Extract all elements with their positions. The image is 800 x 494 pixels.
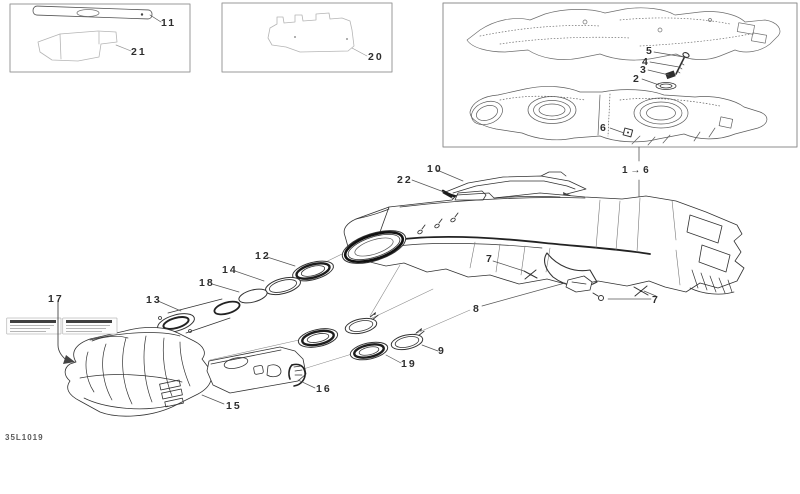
callout-15: 15 xyxy=(226,401,242,412)
ring-dark-b xyxy=(349,339,389,363)
callout-7-left: 7 xyxy=(486,254,494,265)
callout-10: 10 xyxy=(427,164,443,175)
ring-18 xyxy=(237,286,268,305)
callout-3: 3 xyxy=(640,65,648,76)
callout-13: 13 xyxy=(146,295,162,306)
diagram-canvas xyxy=(0,0,800,494)
inset-box-1 xyxy=(10,4,190,72)
callout-16: 16 xyxy=(316,384,332,395)
callout-18: 18 xyxy=(199,278,215,289)
part-strip-11 xyxy=(33,6,152,19)
ring-dark-a xyxy=(297,326,340,351)
silencer-15 xyxy=(65,327,211,416)
parts-diagram-page: 11 21 20 5 4 3 2 6 1 → 6 10 22 7 8 7 12 … xyxy=(0,0,800,494)
callout-1-to-6: 1 → 6 xyxy=(622,166,649,176)
hardware-stack-2-3-4-5 xyxy=(656,52,690,90)
washer-2 xyxy=(656,83,676,90)
callout-7-right: 7 xyxy=(652,295,660,306)
callout-14: 14 xyxy=(222,265,238,276)
ring-clamp-b xyxy=(389,328,427,352)
screw-7-right xyxy=(593,293,604,301)
part-gasket-20 xyxy=(268,13,354,52)
inset-box-3 xyxy=(443,3,797,147)
callout-2: 2 xyxy=(633,74,641,85)
airbox-body xyxy=(338,191,744,294)
engine-top-sketch xyxy=(467,8,780,60)
plate-16 xyxy=(207,347,306,393)
callout-9: 9 xyxy=(438,346,446,357)
callout-17: 17 xyxy=(48,294,64,305)
screw-6 xyxy=(623,128,633,137)
callout-12: 12 xyxy=(255,251,271,262)
clip-7-right xyxy=(634,286,648,296)
engine-bottom-sketch xyxy=(468,86,767,145)
callout-5: 5 xyxy=(646,46,654,57)
callout-8: 8 xyxy=(473,304,481,315)
ring-clamp-a xyxy=(343,312,381,336)
callout-20: 20 xyxy=(368,52,384,63)
ring-14 xyxy=(264,274,303,298)
callout-19: 19 xyxy=(401,359,417,370)
callout-21: 21 xyxy=(131,47,147,58)
ring-group-9-19 xyxy=(297,312,427,363)
part-bracket-21 xyxy=(38,31,117,61)
callout-6: 6 xyxy=(600,123,608,134)
sheet-code: 35L1019 xyxy=(5,433,44,442)
callout-11: 11 xyxy=(161,18,176,29)
warning-label xyxy=(7,318,117,334)
inset-box-2 xyxy=(222,3,392,72)
callout-22: 22 xyxy=(397,175,413,186)
